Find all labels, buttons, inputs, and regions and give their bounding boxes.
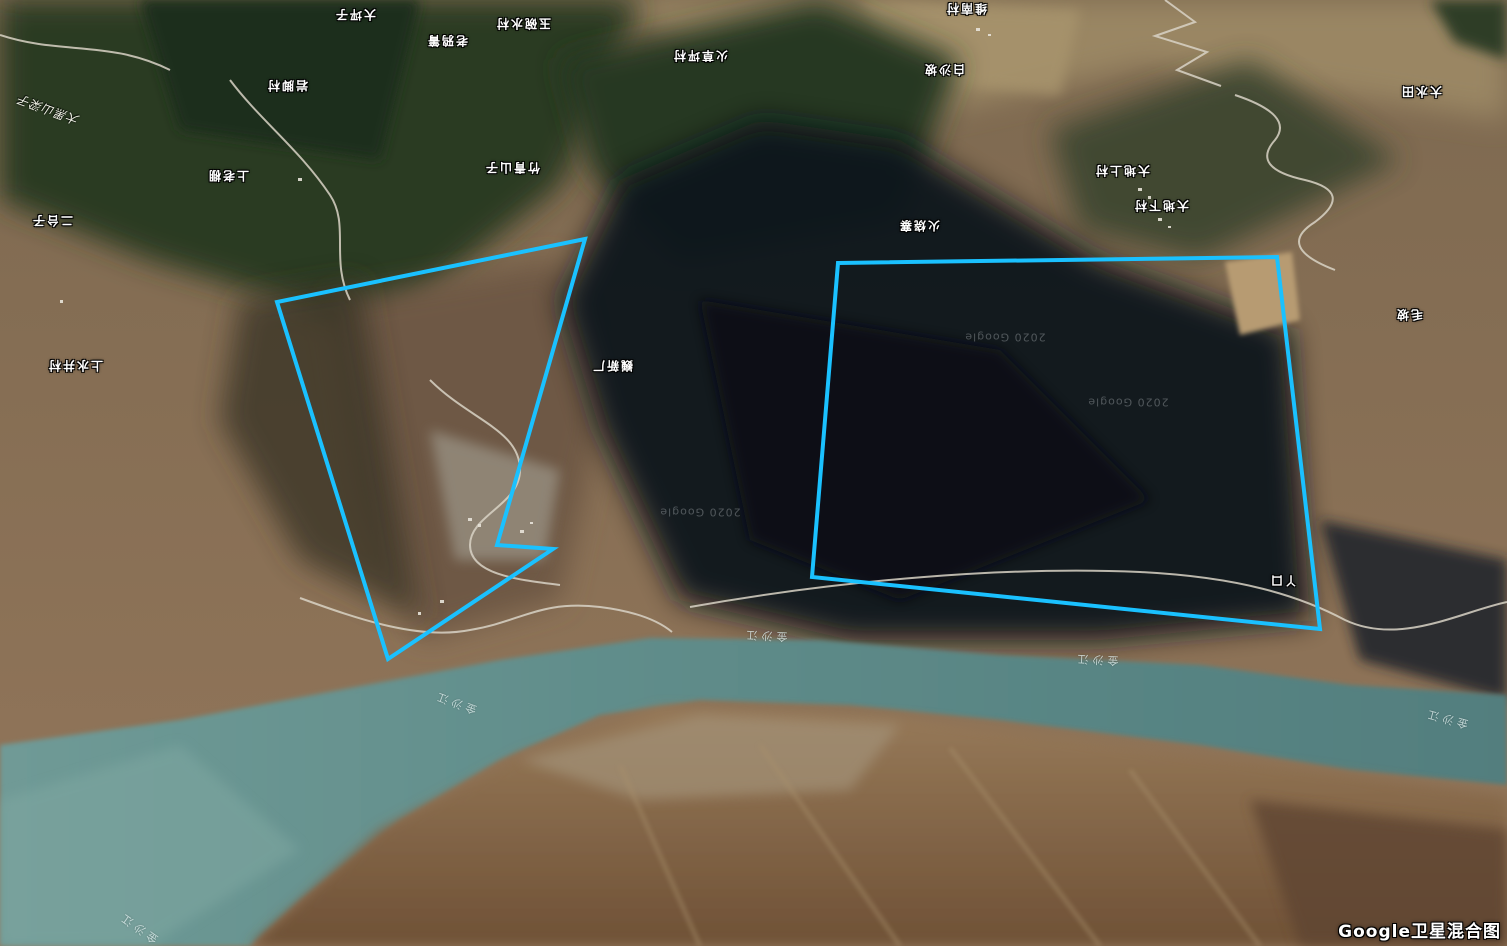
terrain-imagery [0, 0, 1507, 946]
satellite-map[interactable]: 大坪子玉碗水村老鸦箐火草坪村维南村白沙坡岩脚村大水田竹青山子上老棚大地上村大地下… [0, 0, 1507, 946]
map-type-label: Google卫星混合图 [1338, 917, 1501, 942]
